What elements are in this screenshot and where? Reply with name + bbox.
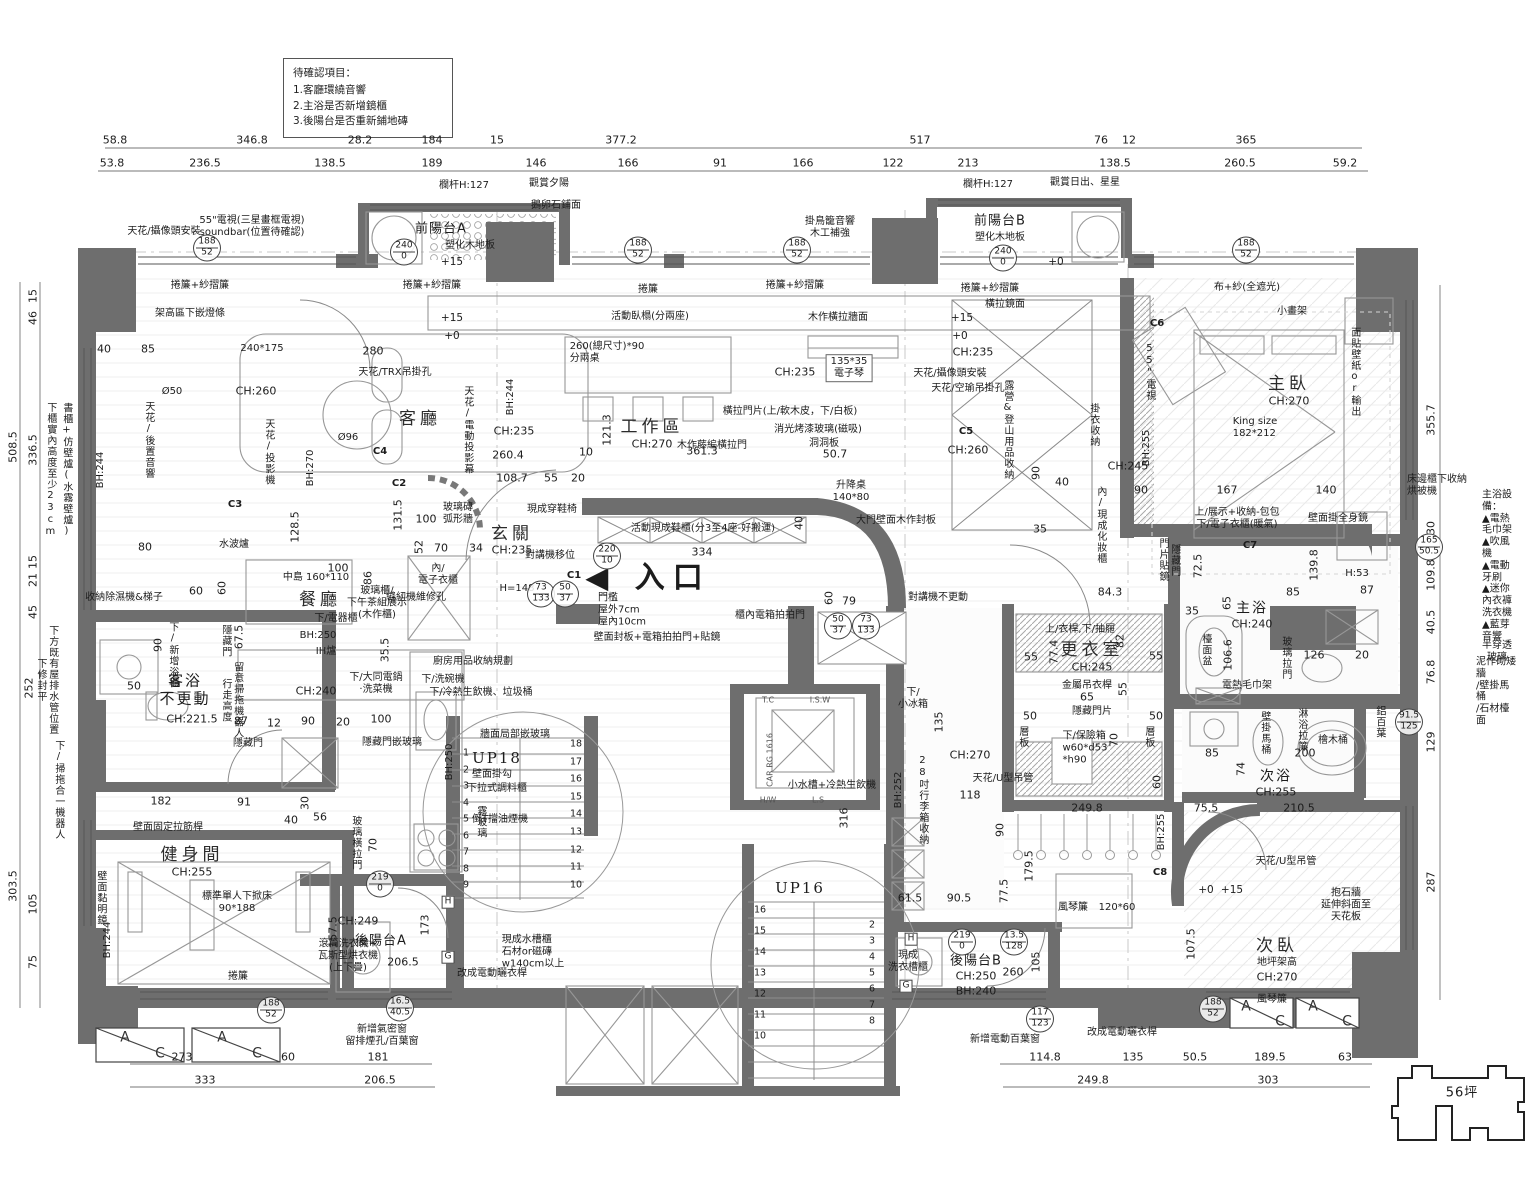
floor-plan-drawing: [0, 0, 1536, 1186]
safe-box: [1052, 738, 1092, 784]
floor-plan-canvas: 待確認項目： 1.客廳環繞音響2.主浴是否新增鏡櫃3.後陽台是否重新鋪地磚 58…: [0, 0, 1536, 1186]
wardrobe-top: [1016, 614, 1162, 672]
notes-item: 1.客廳環繞音響: [293, 83, 443, 99]
notes-item: 3.後陽台是否重新鋪地磚: [293, 114, 443, 130]
building-footprint-icon: [1392, 1066, 1524, 1140]
notes-item: 2.主浴是否新增鏡櫃: [293, 99, 443, 115]
balcony-b-planter: [1072, 212, 1124, 262]
notes-box: 待確認項目： 1.客廳環繞音響2.主浴是否新增鏡櫃3.後陽台是否重新鋪地磚: [283, 58, 453, 138]
notes-title: 待確認項目：: [293, 66, 443, 82]
notes-items: 1.客廳環繞音響2.主浴是否新增鏡櫃3.後陽台是否重新鋪地磚: [293, 83, 443, 130]
